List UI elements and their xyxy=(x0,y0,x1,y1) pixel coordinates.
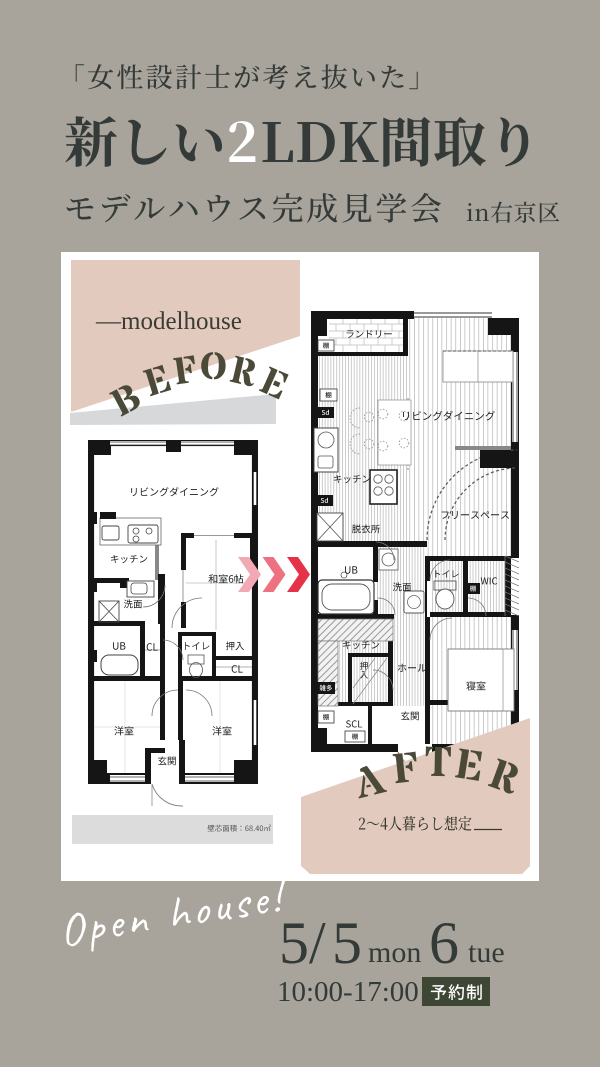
svg-text:6: 6 xyxy=(429,910,459,976)
svg-text:tue: tue xyxy=(468,936,505,969)
svg-text:—modelhouse: —modelhouse xyxy=(95,308,242,335)
svg-text:5: 5 xyxy=(332,910,362,976)
svg-text:mon: mon xyxy=(368,936,421,969)
svg-text:10:00-17:00: 10:00-17:00 xyxy=(277,976,419,1008)
svg-text:5/: 5/ xyxy=(279,910,326,976)
